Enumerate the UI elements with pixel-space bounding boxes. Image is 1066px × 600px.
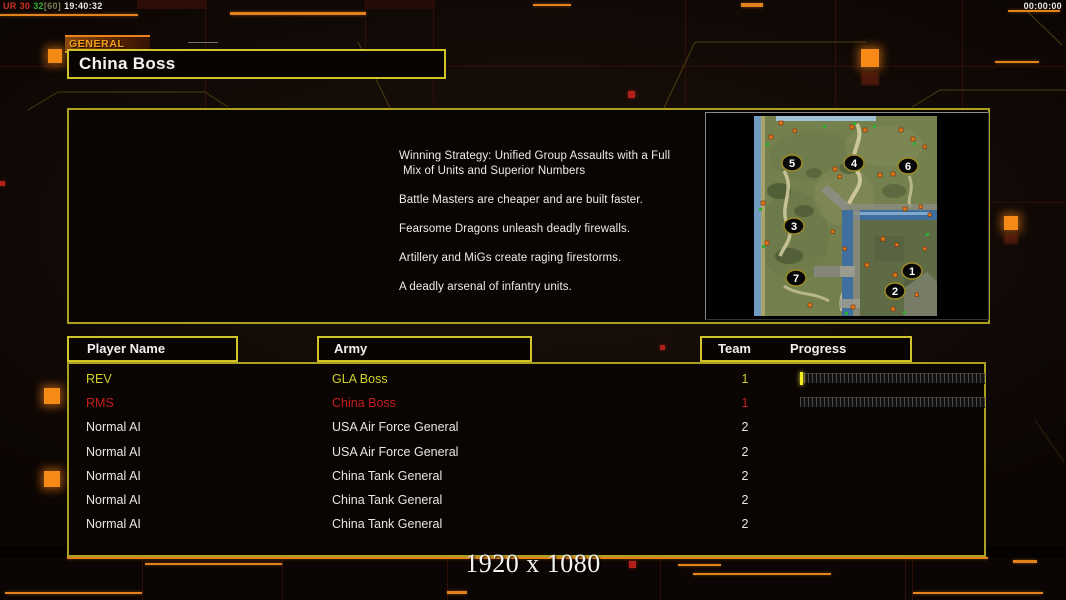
player-army: USA Air Force General xyxy=(332,440,458,464)
player-row: REV GLA Boss 1 xyxy=(69,367,984,391)
player-row: RMS China Boss 1 xyxy=(69,391,984,415)
decor-square xyxy=(0,181,5,186)
decor-square xyxy=(1004,234,1018,244)
player-list: REV GLA Boss 1 RMS China Boss 1 Normal A… xyxy=(67,362,986,557)
column-header-player-name: Player Name xyxy=(67,336,238,362)
map-preview: 5 4 6 3 1 7 2 xyxy=(705,112,989,320)
svg-text:3: 3 xyxy=(791,221,797,233)
start-position-4: 4 xyxy=(844,155,864,171)
decor-line xyxy=(188,42,218,43)
start-position-6: 6 xyxy=(898,158,918,174)
start-position-7: 7 xyxy=(786,270,806,286)
decor-line xyxy=(145,563,282,565)
briefing-line: Artillery and MiGs create raging firesto… xyxy=(399,251,709,266)
status-value-3: [60] xyxy=(44,1,61,11)
game-loading-screen: UR3032[60]19:40:32 00:00:00 GENERAL Chin… xyxy=(0,0,1066,600)
decor-block xyxy=(365,0,435,9)
player-army: China Tank General xyxy=(332,488,442,512)
player-row: Normal AI USA Air Force General 2 xyxy=(69,415,984,439)
load-progress-bar xyxy=(800,397,985,408)
player-team: 2 xyxy=(730,488,760,512)
player-team: 2 xyxy=(730,415,760,439)
svg-text:7: 7 xyxy=(793,273,799,285)
decor-square xyxy=(629,561,636,568)
column-header-team-progress: Team Progress xyxy=(700,336,912,362)
briefing-line: Battle Masters are cheaper and are built… xyxy=(399,193,709,208)
map-image: 5 4 6 3 1 7 2 xyxy=(754,116,937,316)
briefing-line: A deadly arsenal of infantry units. xyxy=(399,280,709,295)
briefing-line: Fearsome Dragons unleash deadly firewall… xyxy=(399,222,709,237)
network-status: UR3032[60]19:40:32 xyxy=(3,1,106,11)
decor-line xyxy=(741,3,763,7)
decor-square xyxy=(44,471,60,487)
player-team: 2 xyxy=(730,464,760,488)
decor-square xyxy=(44,388,60,404)
decor-line xyxy=(1013,560,1037,563)
player-team: 1 xyxy=(730,367,760,391)
decor-line xyxy=(913,592,1043,594)
player-name: Normal AI xyxy=(86,512,141,536)
match-timer: 00:00:00 xyxy=(1024,1,1062,11)
decor-line xyxy=(533,4,571,6)
status-ur-label: UR xyxy=(3,1,17,11)
start-position-3: 3 xyxy=(784,218,804,234)
player-army: China Tank General xyxy=(332,512,442,536)
player-army: USA Air Force General xyxy=(332,415,458,439)
start-position-2: 2 xyxy=(885,283,905,299)
player-team: 2 xyxy=(730,512,760,536)
svg-text:1: 1 xyxy=(909,266,915,278)
player-army: GLA Boss xyxy=(332,367,388,391)
status-clock: 19:40:32 xyxy=(64,1,102,11)
column-header-team: Team xyxy=(718,338,751,360)
decor-line xyxy=(678,564,721,566)
load-progress-bar xyxy=(800,373,985,384)
player-name: Normal AI xyxy=(86,440,141,464)
decor-line xyxy=(693,573,831,575)
player-row: Normal AI China Tank General 2 xyxy=(69,488,984,512)
start-position-5: 5 xyxy=(782,155,802,171)
svg-text:2: 2 xyxy=(892,286,898,298)
player-name: REV xyxy=(86,367,112,391)
player-name: RMS xyxy=(86,391,114,415)
decor-square xyxy=(1004,216,1018,230)
decor-block xyxy=(137,0,207,9)
briefing-panel: Winning Strategy: Unified Group Assaults… xyxy=(67,108,990,324)
decor-square xyxy=(861,72,879,85)
strategy-text: Winning Strategy: Unified Group Assaults… xyxy=(399,149,709,295)
player-row: Normal AI China Tank General 2 xyxy=(69,464,984,488)
decor-line xyxy=(5,592,142,594)
grid-line xyxy=(282,556,283,600)
player-row: Normal AI China Tank General 2 xyxy=(69,512,984,536)
decor-square xyxy=(628,91,635,98)
decor-square xyxy=(48,49,62,63)
page-title: China Boss xyxy=(67,49,446,79)
status-value-1: 30 xyxy=(20,1,31,11)
start-position-1: 1 xyxy=(902,263,922,279)
player-row: Normal AI USA Air Force General 2 xyxy=(69,440,984,464)
decor-line xyxy=(230,12,366,15)
decor-line xyxy=(995,61,1039,63)
player-team: 1 xyxy=(730,391,760,415)
status-value-2: 32 xyxy=(33,1,44,11)
grid-line xyxy=(835,0,836,108)
decor-square xyxy=(660,345,665,350)
briefing-line: Winning Strategy: Unified Group Assaults… xyxy=(399,149,709,164)
progress-tick xyxy=(800,372,803,385)
player-army: China Tank General xyxy=(332,464,442,488)
grid-line xyxy=(142,556,143,600)
column-header-progress: Progress xyxy=(790,338,846,360)
briefing-line: Mix of Units and Superior Numbers xyxy=(399,164,709,179)
player-army: China Boss xyxy=(332,391,396,415)
player-name: Normal AI xyxy=(86,464,141,488)
decor-square xyxy=(861,49,879,67)
column-header-army: Army xyxy=(317,336,532,362)
player-name: Normal AI xyxy=(86,415,141,439)
decor-line xyxy=(447,591,467,594)
grid-line xyxy=(685,0,686,108)
player-team: 2 xyxy=(730,440,760,464)
grid-line xyxy=(962,0,963,108)
svg-text:5: 5 xyxy=(789,158,795,170)
svg-text:6: 6 xyxy=(905,161,911,173)
resolution-label: 1920 x 1080 xyxy=(465,549,601,579)
svg-text:4: 4 xyxy=(851,158,858,170)
decor-line xyxy=(0,14,138,16)
player-name: Normal AI xyxy=(86,488,141,512)
